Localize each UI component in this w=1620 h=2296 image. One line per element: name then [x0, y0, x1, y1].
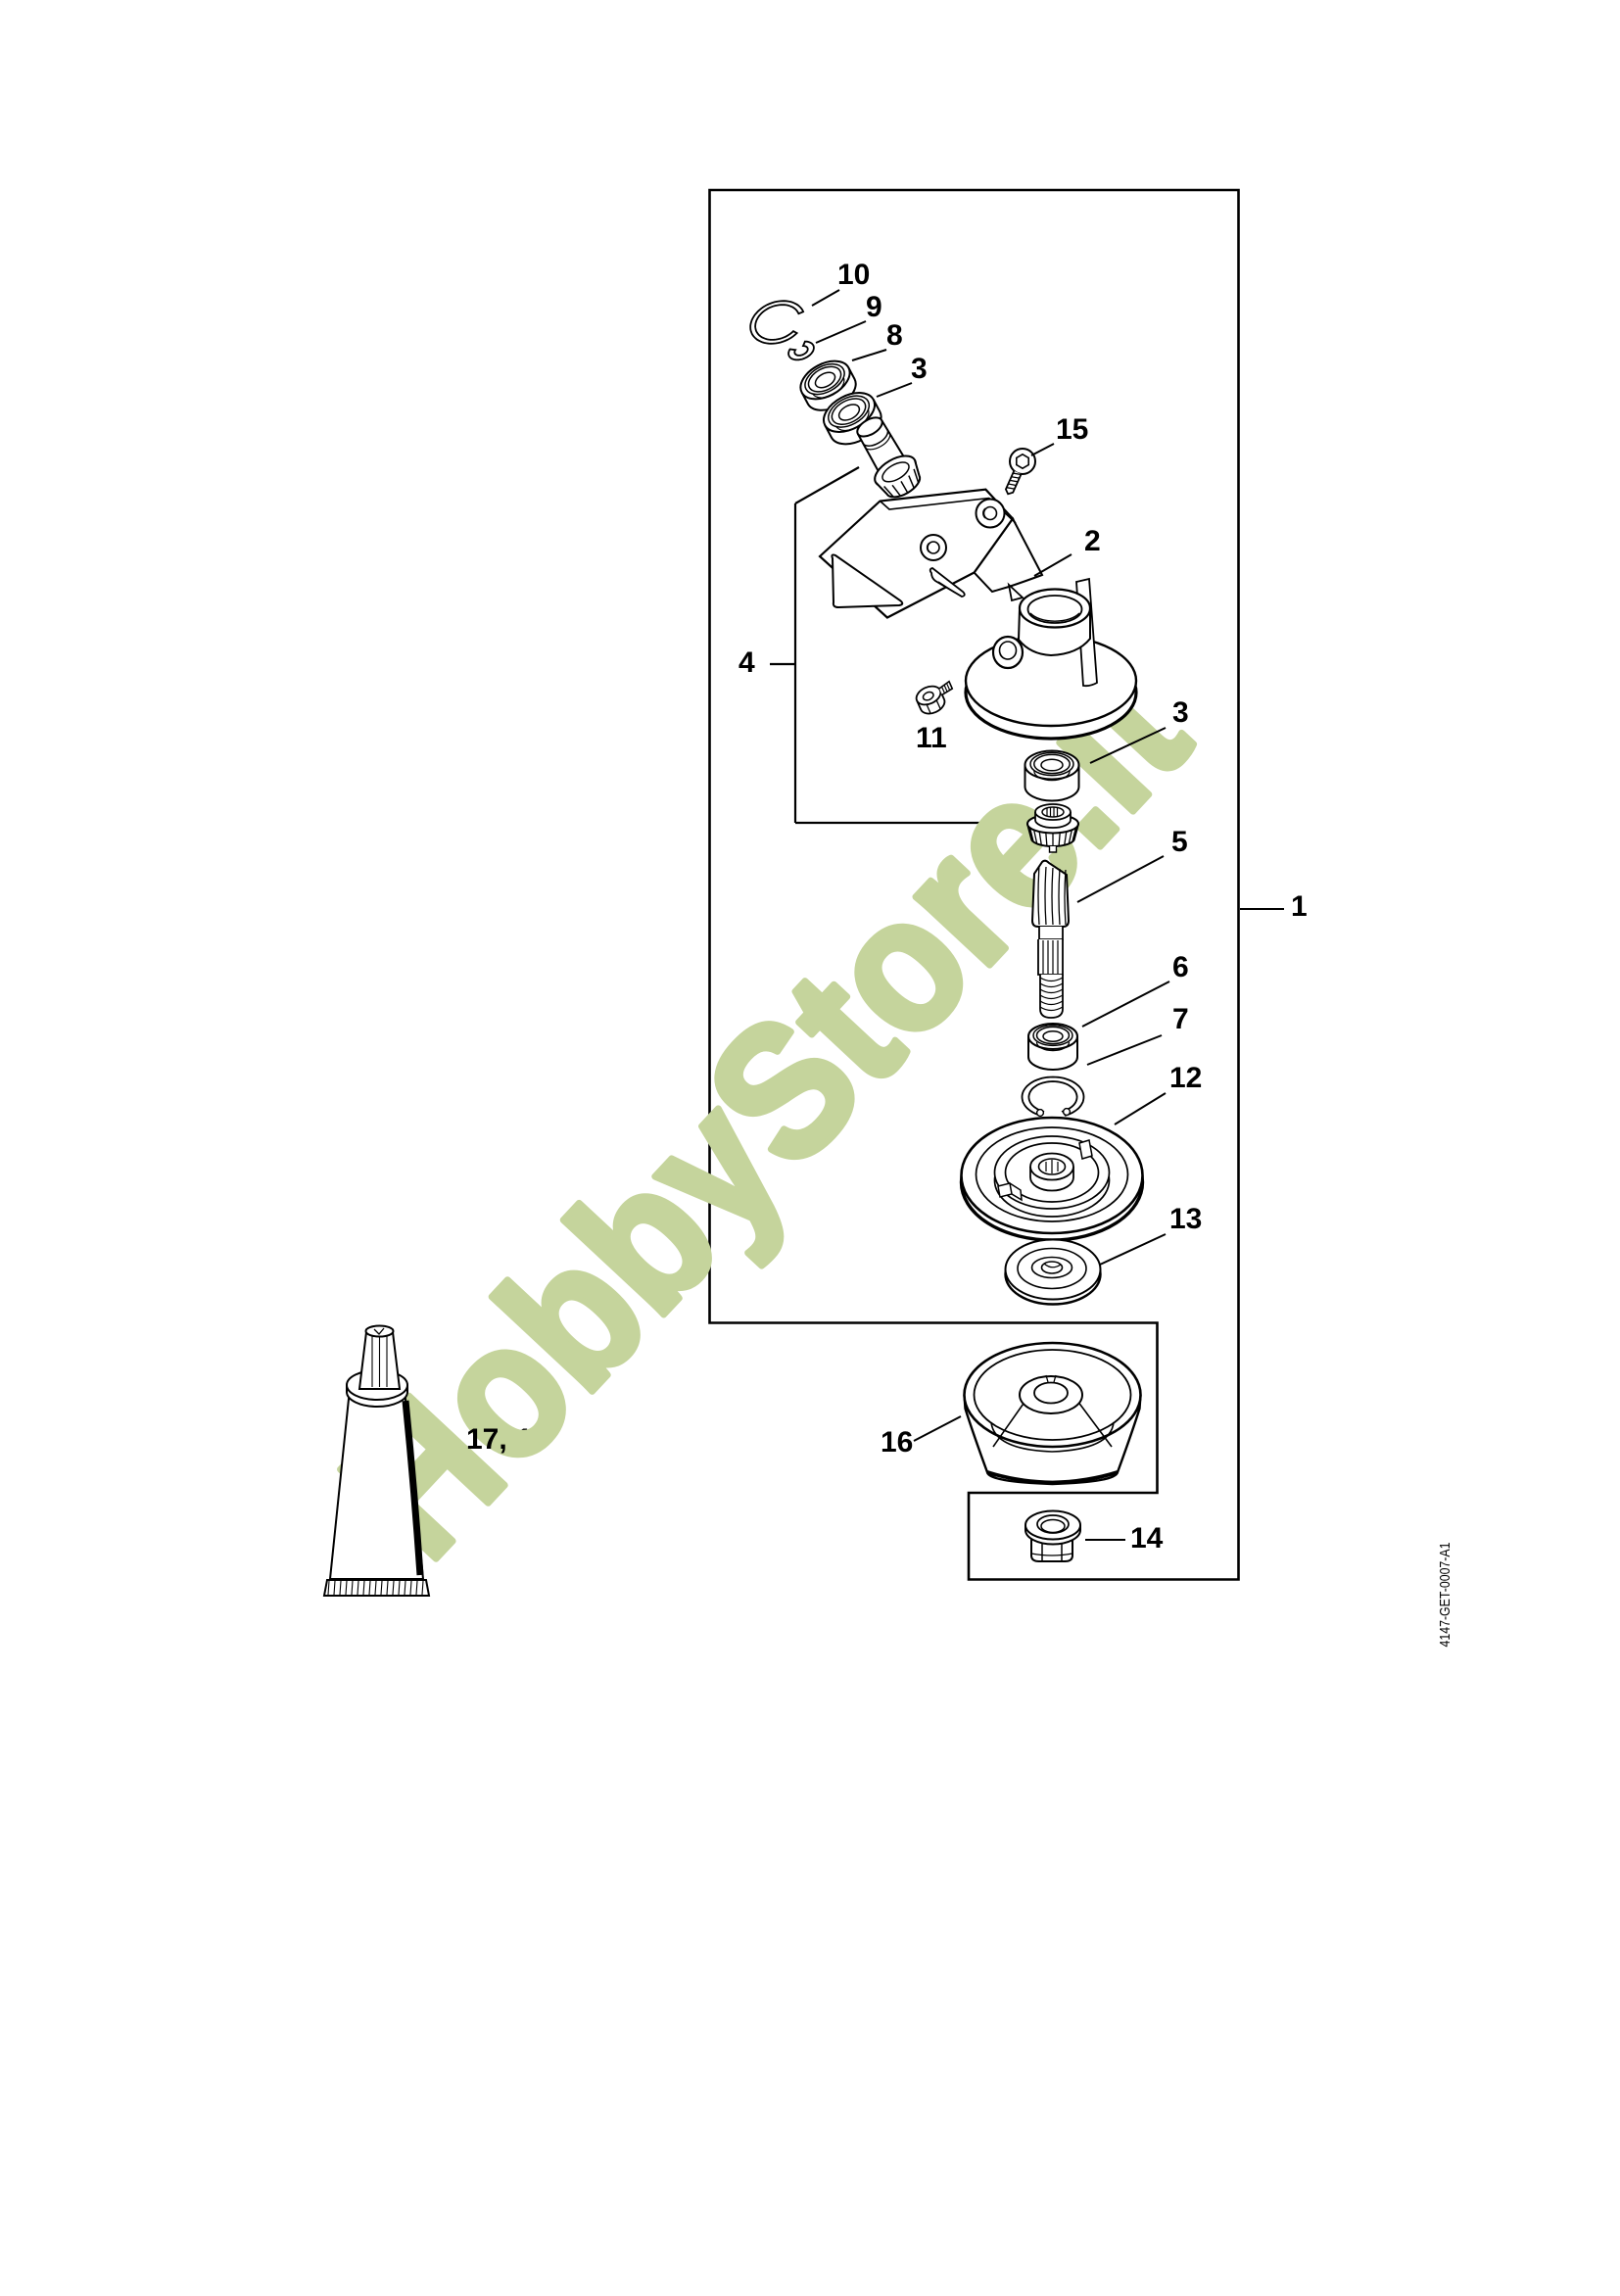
svg-text:12: 12 [1169, 1062, 1202, 1094]
svg-text:6: 6 [1172, 951, 1189, 983]
svg-text:16: 16 [881, 1426, 913, 1459]
svg-text:8: 8 [886, 319, 903, 352]
svg-text:4147-GET-0007-A1: 4147-GET-0007-A1 [1437, 1543, 1453, 1648]
svg-text:7: 7 [1172, 1003, 1189, 1035]
svg-text:4: 4 [739, 646, 755, 679]
svg-text:3: 3 [911, 353, 928, 385]
svg-text:13: 13 [1169, 1203, 1202, 1235]
svg-text:2: 2 [1084, 525, 1101, 557]
svg-text:11: 11 [916, 722, 947, 754]
svg-text:9: 9 [866, 291, 882, 323]
svg-text:14: 14 [1130, 1522, 1164, 1555]
svg-text:15: 15 [1056, 413, 1088, 446]
svg-text:10: 10 [837, 259, 870, 291]
svg-text:5: 5 [1171, 826, 1188, 858]
svg-text:17,: 17, [466, 1423, 507, 1456]
svg-text:1: 1 [1291, 890, 1308, 923]
svg-text:3: 3 [1172, 696, 1189, 729]
